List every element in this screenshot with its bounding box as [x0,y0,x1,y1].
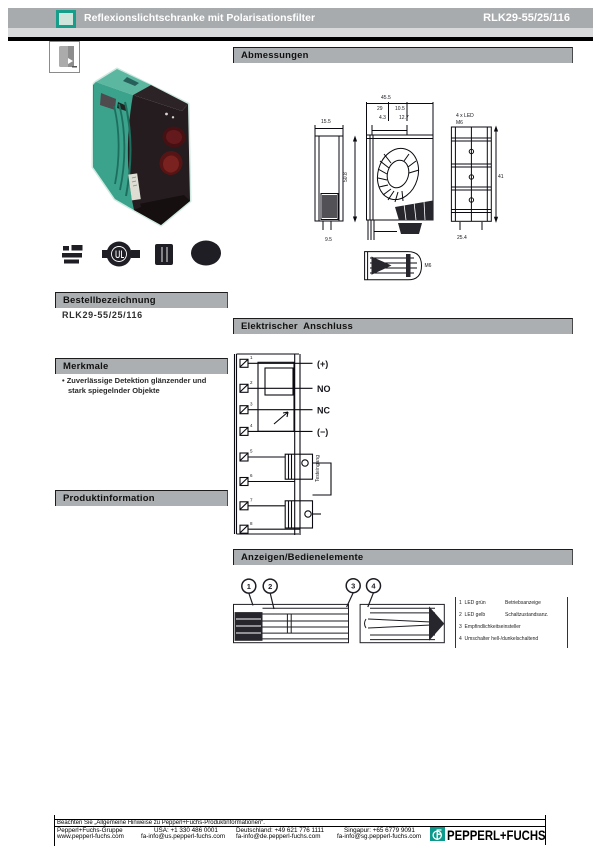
svg-text:7: 7 [250,498,253,503]
svg-text:NC: NC [317,406,330,416]
svg-text:5: 5 [250,449,253,454]
svg-text:M6: M6 [456,120,463,126]
svg-text:4 x LED: 4 x LED [456,113,474,119]
svg-text:3: 3 [351,581,355,590]
svg-text:12.7: 12.7 [399,115,409,121]
svg-text:(+): (+) [317,359,328,369]
svg-text:6: 6 [250,473,253,478]
svg-text:41: 41 [498,174,504,180]
svg-text:4: 4 [250,423,253,428]
svg-text:10.5: 10.5 [395,106,405,112]
svg-text:4.3: 4.3 [379,115,386,121]
svg-text:9.5: 9.5 [325,237,332,243]
svg-text:45.5: 45.5 [381,95,391,101]
svg-text:NO: NO [317,384,331,394]
svg-text:29: 29 [377,106,383,112]
svg-text:50.8: 50.8 [343,172,349,182]
svg-text:(−): (−) [317,427,328,437]
svg-text:15.5: 15.5 [321,119,331,125]
svg-text:1: 1 [250,355,253,360]
svg-text:3: 3 [250,402,253,407]
svg-text:2: 2 [250,380,253,385]
svg-text:M6: M6 [425,263,432,269]
svg-text:Testeingang: Testeingang [315,455,321,482]
svg-text:1: 1 [247,582,251,591]
svg-text:25.4: 25.4 [457,235,467,241]
svg-text:2: 2 [268,582,272,591]
svg-text:8: 8 [250,521,253,526]
